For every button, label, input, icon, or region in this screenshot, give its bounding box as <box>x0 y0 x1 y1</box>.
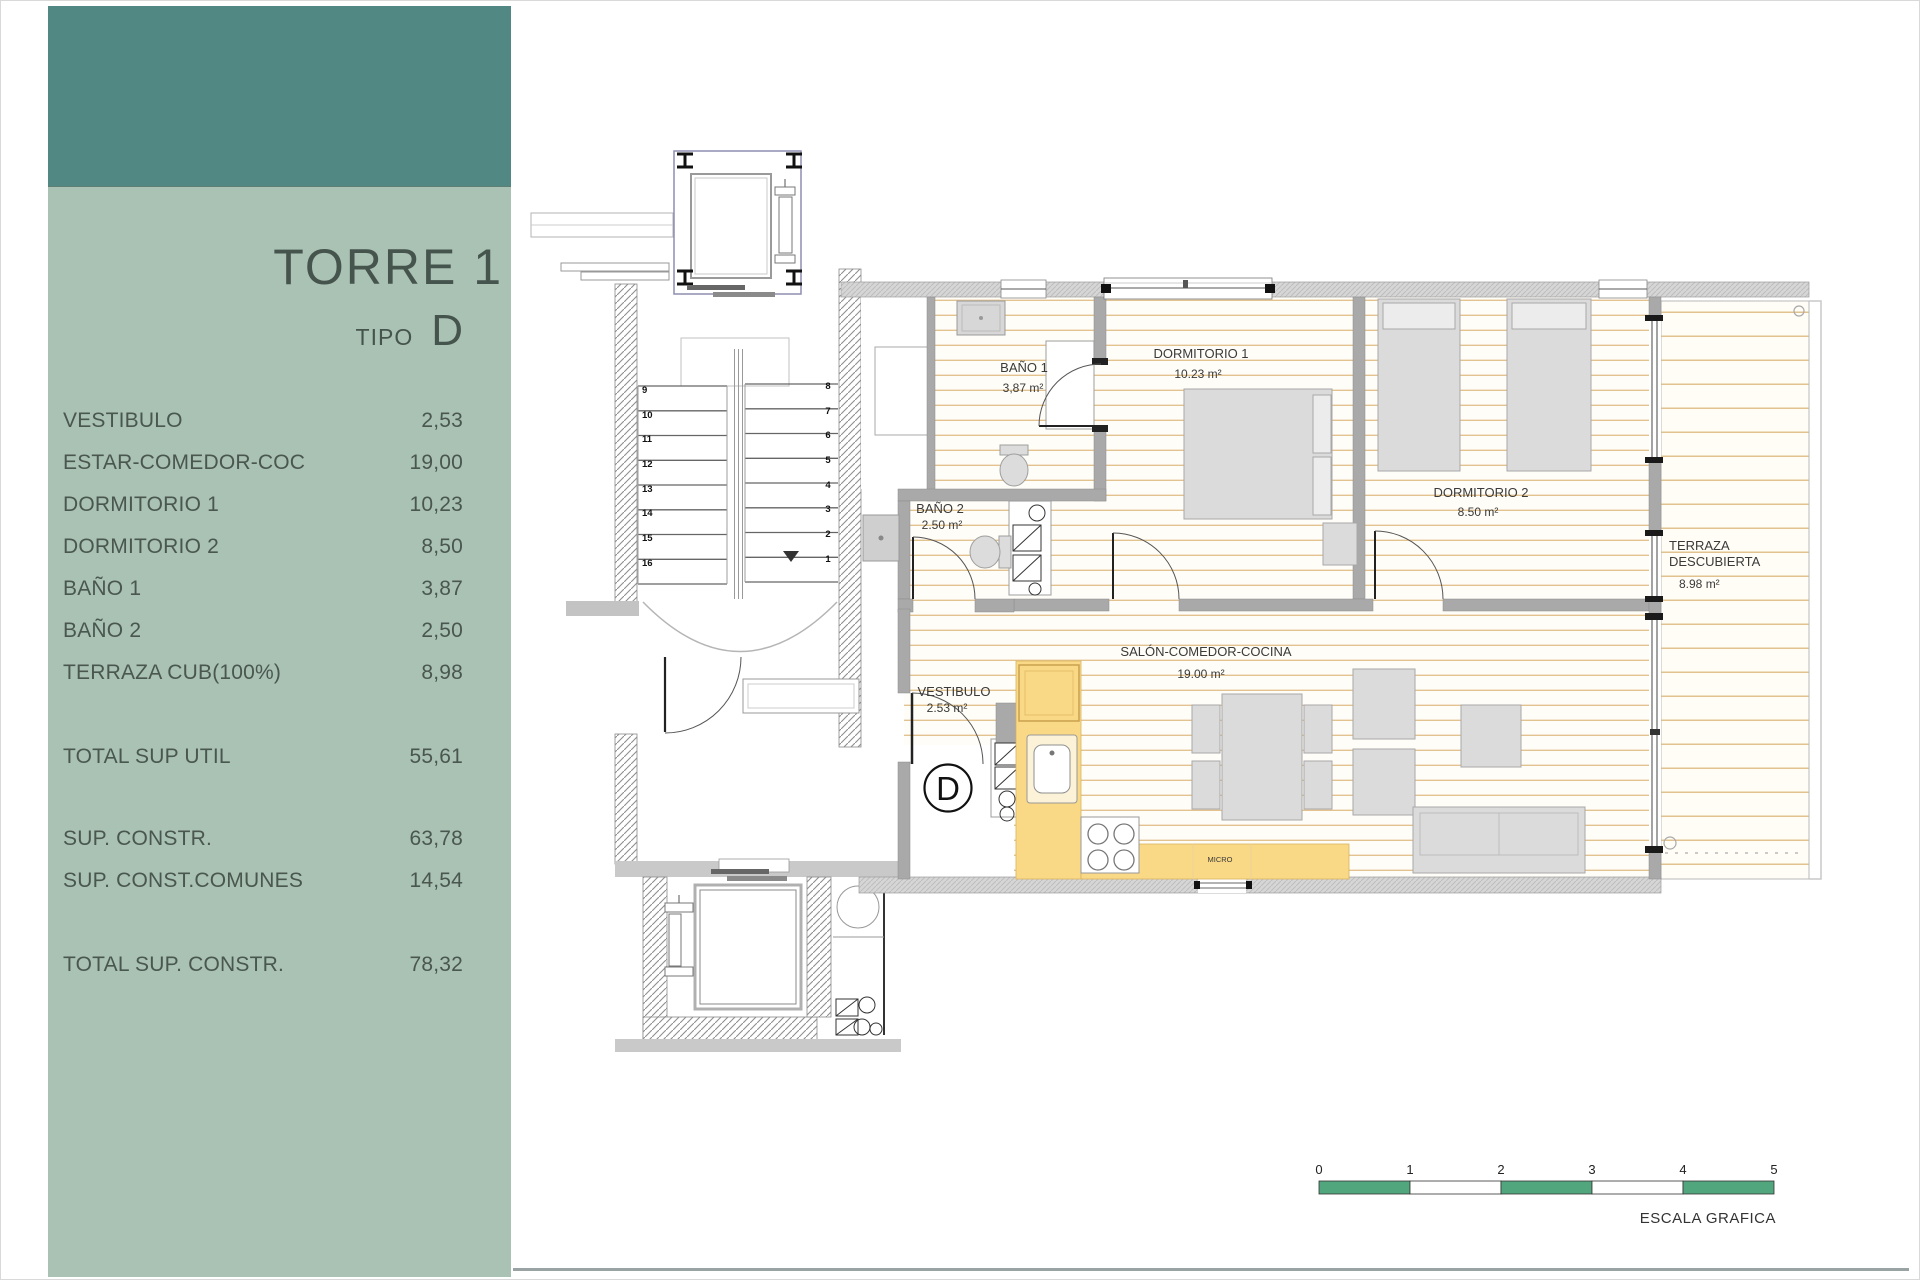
fridge-icon <box>1019 665 1079 721</box>
area-label: TERRAZA CUB(100%) <box>63 661 281 685</box>
total-row: TOTAL SUP UTIL55,61 <box>63 745 463 769</box>
armchair <box>1353 749 1415 815</box>
wall-stub <box>566 601 639 616</box>
area-value: 19,00 <box>409 451 463 475</box>
area-label: DORMITORIO 2 <box>63 535 219 559</box>
shower-icon <box>957 301 1005 335</box>
step-number: 9 <box>642 385 647 396</box>
room-label-vestibulo: VESTIBULO <box>918 684 991 699</box>
micro-label: MICRO <box>1208 855 1233 864</box>
room-label-bano2: BAÑO 2 <box>916 501 964 516</box>
curved-wall <box>643 602 837 652</box>
south-wall <box>859 877 1661 893</box>
step-number: 16 <box>642 558 653 569</box>
toilet-icon <box>970 536 1011 568</box>
room-area-bano1: 3,87 m² <box>1003 381 1044 395</box>
page-bottom-rule <box>513 1268 1909 1271</box>
area-label: VESTIBULO <box>63 409 183 433</box>
elevator-cab <box>695 885 801 1009</box>
elevator-counterweight <box>665 895 693 976</box>
total-row: SUP. CONSTR.63,78 <box>63 827 463 851</box>
north-wall <box>841 282 1809 297</box>
area-row: VESTIBULO2,53 <box>63 409 463 433</box>
total-value: 14,54 <box>409 869 463 893</box>
stair-wall-right <box>839 269 861 747</box>
scale-tick: 3 <box>1588 1162 1595 1177</box>
step-number: 6 <box>825 430 830 441</box>
step-number: 13 <box>642 484 653 495</box>
room-label-salon: SALÓN-COMEDOR-COCINA <box>1120 644 1292 659</box>
closet <box>1046 341 1094 429</box>
tipo-row: TIPO D <box>356 306 463 356</box>
area-row: ESTAR-COMEDOR-COC19,00 <box>63 451 463 475</box>
side-table <box>1461 705 1521 767</box>
sidebar-header-band <box>48 6 511 186</box>
step-number: 11 <box>642 434 653 445</box>
window <box>1194 877 1252 893</box>
scale-tick: 1 <box>1406 1162 1413 1177</box>
area-label: DORMITORIO 1 <box>63 493 219 517</box>
area-label: BAÑO 1 <box>63 577 141 601</box>
stair-arrow-icon <box>783 551 799 562</box>
scale-tick: 2 <box>1497 1162 1504 1177</box>
room-label-dorm2: DORMITORIO 2 <box>1433 485 1528 500</box>
elevator-door <box>711 869 769 874</box>
nightstand <box>1323 523 1357 565</box>
service-room <box>833 879 884 1035</box>
tipo-value: D <box>431 306 463 356</box>
total-label: TOTAL SUP. CONSTR. <box>63 953 284 977</box>
room-area-dorm1: 10.23 m² <box>1174 367 1221 381</box>
area-row: BAÑO 22,50 <box>63 619 463 643</box>
room-area-dorm2: 8.50 m² <box>1458 505 1499 519</box>
total-label: SUP. CONST.COMUNES <box>63 869 303 893</box>
shower-icon <box>863 515 899 561</box>
step-number: 3 <box>825 504 830 515</box>
step-number: 14 <box>642 508 653 519</box>
landing-bench <box>743 679 859 713</box>
total-value: 55,61 <box>409 745 463 769</box>
scale-caption: ESCALA GRAFICA <box>1640 1210 1776 1227</box>
scale-bar: 0 1 2 3 4 5 ESCALA GRAFICA <box>1315 1162 1777 1227</box>
south-wall-bar <box>615 1039 901 1052</box>
unit-marker: D <box>925 765 972 812</box>
area-row: DORMITORIO 28,50 <box>63 535 463 559</box>
elevator-top <box>674 151 802 297</box>
landing-door <box>665 657 741 733</box>
area-value: 3,87 <box>421 577 463 601</box>
step-number: 5 <box>825 455 831 466</box>
toilet-icon <box>1000 445 1028 486</box>
room-label-bano1: BAÑO 1 <box>1000 360 1048 375</box>
total-row: TOTAL SUP. CONSTR.78,32 <box>63 953 463 977</box>
area-row: DORMITORIO 110,23 <box>63 493 463 517</box>
step-number: 15 <box>642 533 653 544</box>
area-row: TERRAZA CUB(100%)8,98 <box>63 661 463 685</box>
step-number: 7 <box>825 406 830 417</box>
step-number: 10 <box>642 410 653 421</box>
step-number: 1 <box>825 554 831 565</box>
room-area-terraza: 8.98 m² <box>1679 577 1720 591</box>
room-area-bano2: 2.50 m² <box>922 518 963 532</box>
step-number: 8 <box>825 381 830 392</box>
stair-wall-left <box>615 284 637 614</box>
scale-tick: 5 <box>1770 1162 1777 1177</box>
stair-wall-left-lower <box>615 734 637 864</box>
elevator-door-leaf <box>727 876 787 881</box>
area-value: 8,98 <box>421 661 463 685</box>
bed-single <box>1378 299 1460 471</box>
stairwell: 8 7 6 5 4 3 2 1 9 10 11 12 13 14 15 16 <box>566 269 909 877</box>
step-number: 2 <box>825 529 830 540</box>
area-label: BAÑO 2 <box>63 619 141 643</box>
armchair <box>1353 669 1415 739</box>
total-value: 63,78 <box>409 827 463 851</box>
tower-title: TORRE 1 <box>273 238 503 296</box>
total-row: SUP. CONST.COMUNES14,54 <box>63 869 463 893</box>
unit-marker-letter: D <box>936 770 960 807</box>
bed-single <box>1507 299 1591 471</box>
room-label-terraza-1: TERRAZA <box>1669 538 1730 553</box>
summary-sidebar: TORRE 1 TIPO D VESTIBULO2,53 ESTAR-COMED… <box>48 6 511 1276</box>
step-number: 12 <box>642 459 653 470</box>
room-area-vestibulo: 2.53 m² <box>927 701 968 715</box>
tipo-label: TIPO <box>356 324 414 351</box>
room-label-terraza-2: DESCUBIERTA <box>1669 554 1761 569</box>
room-area-salon: 19.00 m² <box>1177 667 1224 681</box>
sofa <box>1413 807 1585 873</box>
total-label: TOTAL SUP UTIL <box>63 745 231 769</box>
room-label-dorm1: DORMITORIO 1 <box>1153 346 1248 361</box>
area-value: 8,50 <box>421 535 463 559</box>
adjacent-structure <box>531 213 673 280</box>
total-value: 78,32 <box>409 953 463 977</box>
elevator-door <box>687 285 745 290</box>
hob-icon <box>1081 817 1139 873</box>
scale-tick: 0 <box>1315 1162 1322 1177</box>
area-value: 2,50 <box>421 619 463 643</box>
total-label: SUP. CONSTR. <box>63 827 212 851</box>
plan-sheet: 8 7 6 5 4 3 2 1 9 10 11 12 13 14 15 16 <box>0 0 1920 1280</box>
scale-tick: 4 <box>1679 1162 1686 1177</box>
elevator-door-leaf <box>713 292 775 297</box>
elevator-bottom <box>615 869 901 1052</box>
area-label: ESTAR-COMEDOR-COC <box>63 451 305 475</box>
step-number: 4 <box>825 480 831 491</box>
area-value: 10,23 <box>409 493 463 517</box>
area-row: BAÑO 13,87 <box>63 577 463 601</box>
sink-icon <box>1027 735 1077 803</box>
area-value: 2,53 <box>421 409 463 433</box>
